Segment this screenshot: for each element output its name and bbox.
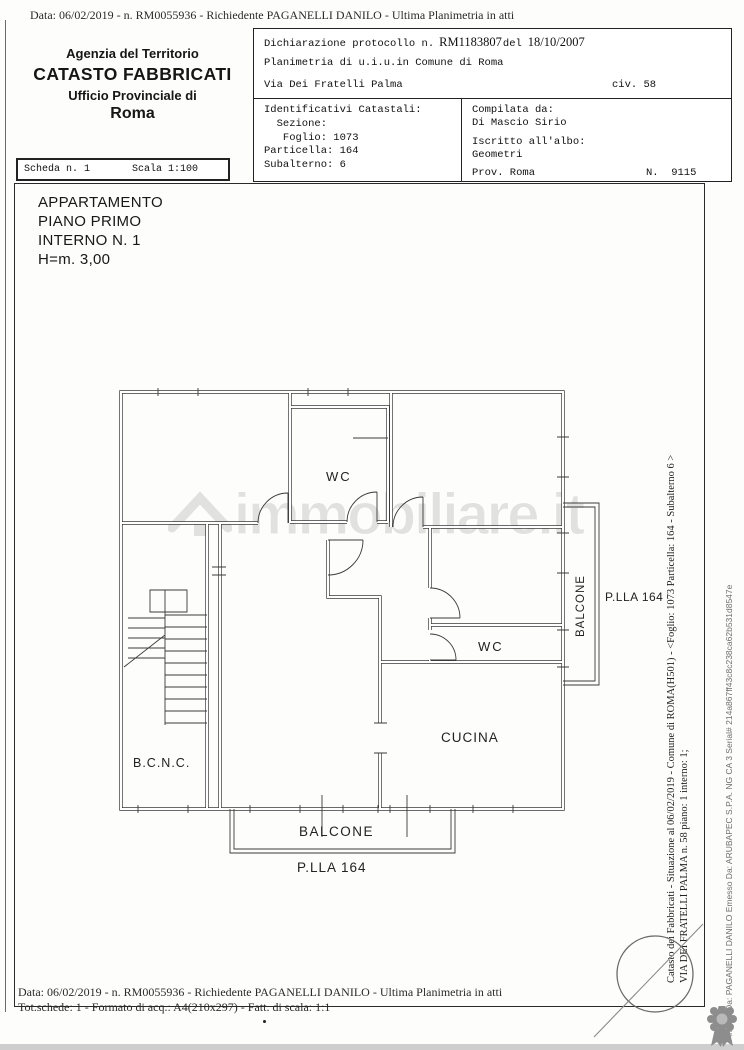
bottom-data-line: Data: 06/02/2019 - n. RM0055936 - Richie… [18, 985, 502, 1000]
ink-dot-artifact [263, 1020, 266, 1023]
identifiers-title: Identificativi Catastali: [264, 104, 422, 118]
room-label-wc-top: WC [326, 469, 352, 484]
agency-name: Agenzia del Territorio [30, 46, 235, 61]
declaration-box: Dichiarazione protocollo n. RM1183807 de… [253, 28, 732, 182]
side-text-signature: Firmato Da: PAGANELLI DANILO Emesso Da: … [724, 585, 734, 1042]
protocol-row: Dichiarazione protocollo n. RM1183807 de… [264, 35, 585, 50]
rosette-seal-icon [704, 1006, 740, 1048]
bottom-format-line: Tot.schede: 1 - Formato di acq.: A4(210x… [18, 1000, 330, 1015]
room-label-cucina: CUCINA [441, 730, 499, 745]
label-balcone-bottom: BALCONE [299, 824, 374, 839]
protocol-label: Dichiarazione protocollo n. [264, 38, 434, 50]
scheda-label: Scheda n. 1 [24, 164, 90, 175]
unit-description: APPARTAMENTO PIANO PRIMO INTERNO N. 1 H=… [38, 193, 163, 269]
cadastral-identifiers: Identificativi Catastali: Sezione: Fogli… [264, 104, 422, 173]
civic-number: civ. 58 [612, 79, 656, 91]
label-plla-bottom: P.LLA 164 [297, 860, 367, 875]
compiler-label: Compilata da: [472, 104, 554, 116]
declaration-divider-h [254, 98, 731, 99]
unit-interno: INTERNO N. 1 [38, 231, 163, 250]
compiler-name: Di Mascio Sirio [472, 117, 567, 129]
floor-plan: WC WC CUCINA B.C.N.C. BALCONE P.LLA 164 … [100, 375, 670, 925]
compiler-number: N. 9115 [646, 167, 696, 179]
unit-type: APPARTAMENTO [38, 193, 163, 212]
compiler-prov: Prov. Roma [472, 167, 535, 179]
top-data-line: Data: 06/02/2019 - n. RM0055936 - Richie… [30, 8, 514, 23]
albo-label: Iscritto all'albo: [472, 136, 585, 148]
street-name: Via Dei Fratelli Palma [264, 79, 403, 91]
office-city: Roma [30, 105, 235, 123]
sezione-line: Sezione: [264, 118, 422, 132]
planimetria-line: Planimetria di u.i.u.in Comune di Roma [264, 57, 503, 69]
protocol-date: 18/10/2007 [528, 35, 585, 50]
page-left-border [5, 20, 6, 1012]
unit-floor: PIANO PRIMO [38, 212, 163, 231]
foglio-line: Foglio: 1073 [264, 132, 422, 146]
room-label-bcnc: B.C.N.C. [133, 756, 190, 770]
subalterno-line: Subalterno: 6 [264, 159, 422, 173]
street-row: Via Dei Fratelli Palma [264, 79, 403, 91]
planimetria-row: Planimetria di u.i.u.in Comune di Roma [264, 57, 503, 69]
catasto-title: CATASTO FABBRICATI [30, 64, 235, 85]
window-ticks [138, 388, 569, 813]
label-plla-right: P.LLA 164 [605, 590, 663, 604]
particella-line: Particella: 164 [264, 145, 422, 159]
room-label-wc-bottom: WC [478, 639, 504, 654]
staircase [124, 590, 207, 725]
protocol-del: del [503, 38, 522, 50]
declaration-divider-v [461, 98, 462, 181]
scala-label: Scala 1:100 [132, 164, 198, 175]
scheda-box: Scheda n. 1 Scala 1:100 [16, 158, 230, 181]
albo-value: Geometri [472, 149, 522, 161]
office-line: Ufficio Provinciale di [30, 88, 235, 103]
agency-header: Agenzia del Territorio CATASTO FABBRICAT… [30, 46, 235, 123]
unit-height: H=m. 3,00 [38, 250, 163, 269]
label-balcone-right: BALCONE [575, 575, 587, 637]
protocol-number: RM1183807 [439, 35, 502, 50]
